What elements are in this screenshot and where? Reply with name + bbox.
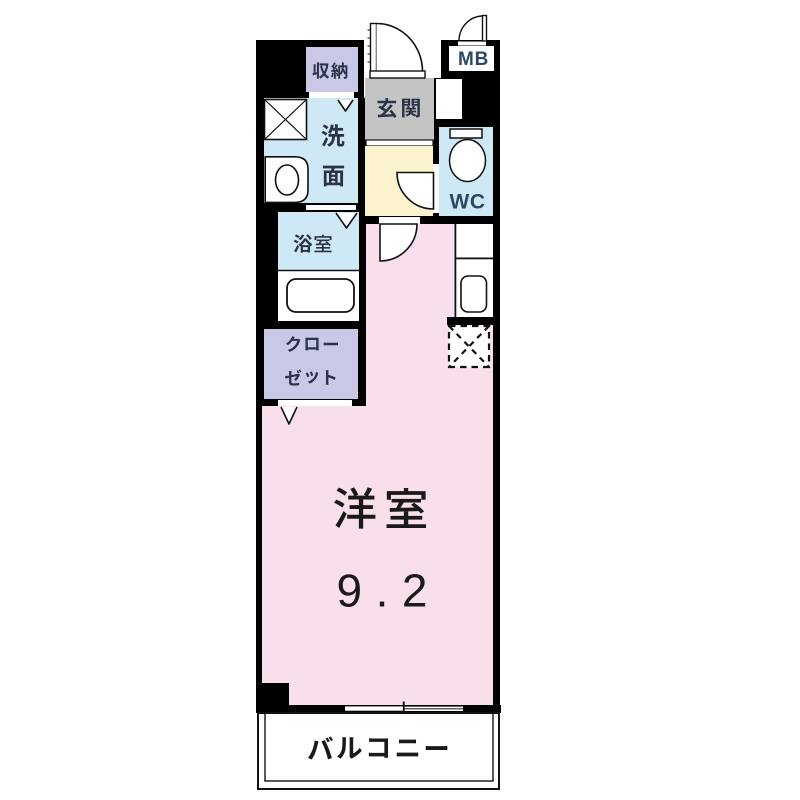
svg-text:WC: WC xyxy=(450,191,486,214)
svg-text:MB: MB xyxy=(458,49,489,70)
svg-text:9.2: 9.2 xyxy=(337,565,441,617)
